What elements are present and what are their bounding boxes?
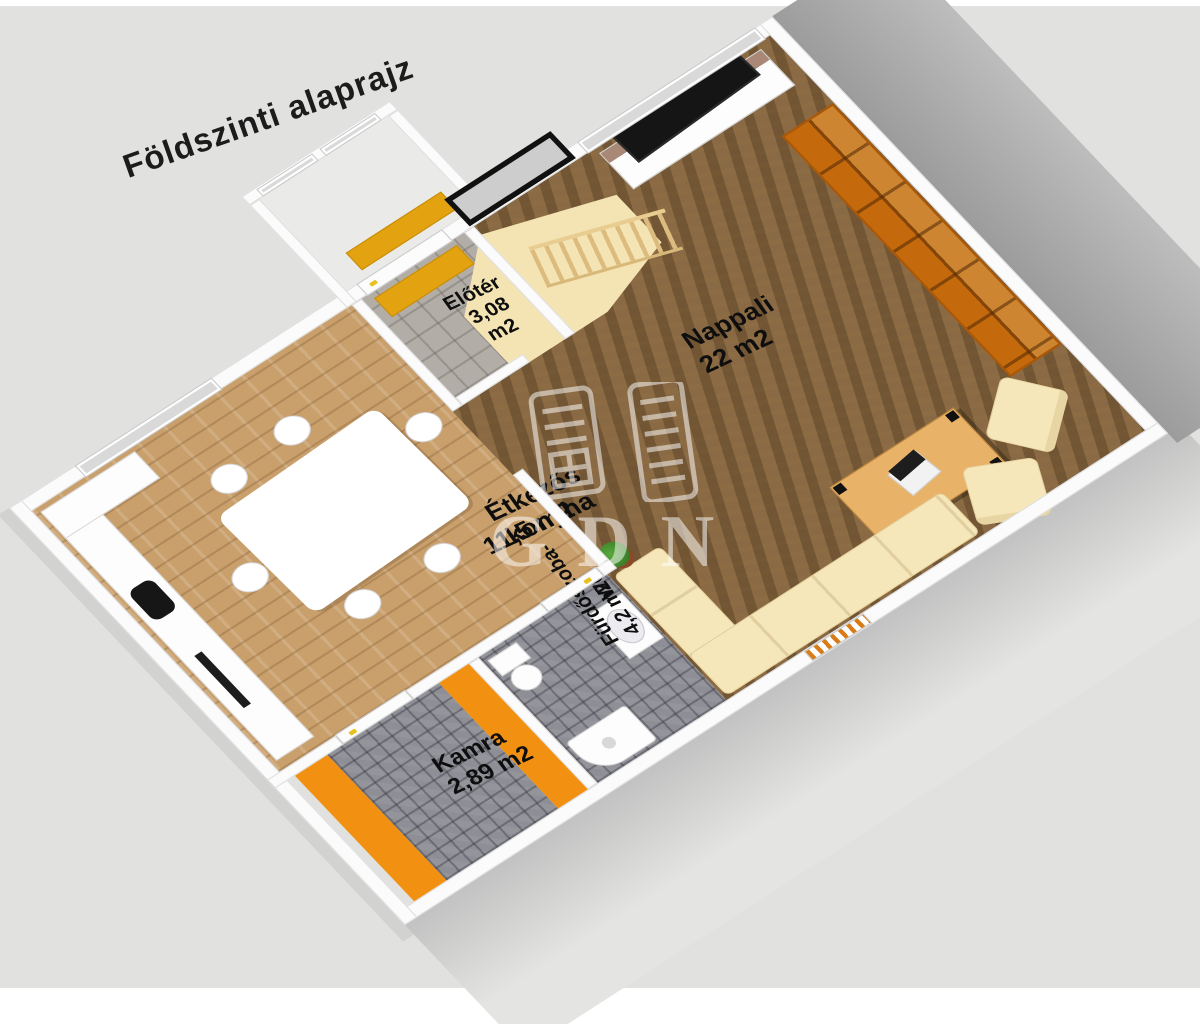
door-handle — [583, 577, 592, 584]
door-handle — [369, 280, 378, 287]
door-handle — [348, 728, 357, 735]
floorplan-image: Földszinti alaprajz — [0, 0, 1200, 1024]
